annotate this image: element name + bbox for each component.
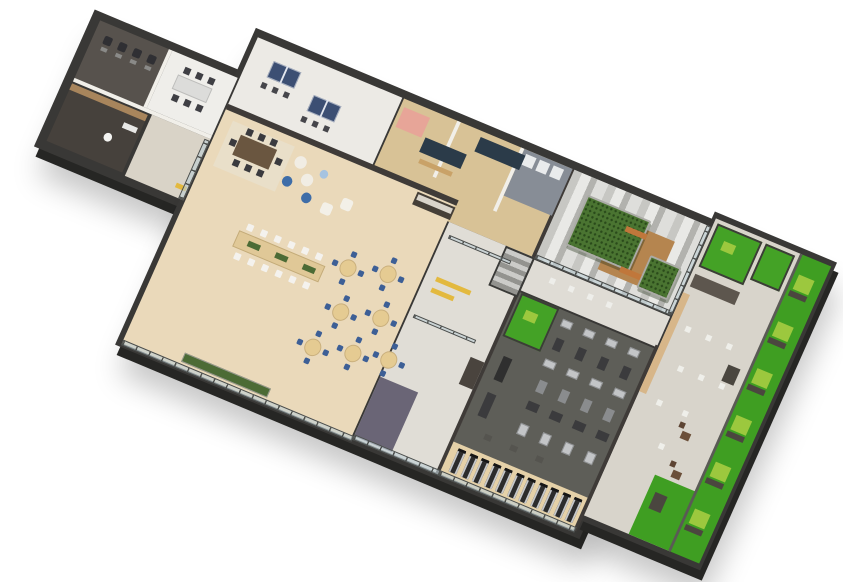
floorplan-render [0, 0, 843, 582]
